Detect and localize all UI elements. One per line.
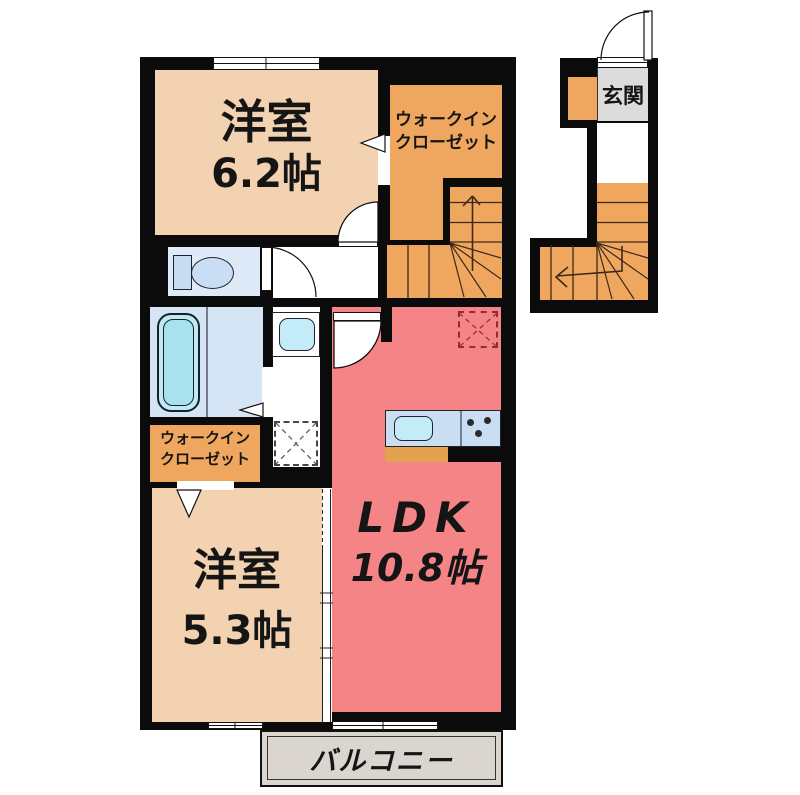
- wic-lower-label-line2: クローゼット: [150, 452, 260, 468]
- door-arc-entrance: [601, 12, 649, 60]
- window-bedroom-lower: [208, 722, 263, 729]
- entrance-bottom-wall: [530, 300, 658, 313]
- bedroom-lower-name: 洋室: [152, 548, 322, 594]
- stove-burner-icon: [475, 430, 482, 437]
- closet-lower-door-opening: [177, 481, 234, 490]
- toilet-icon: [173, 255, 192, 290]
- stove-burner-icon: [467, 419, 474, 426]
- entrance-label: 玄関: [602, 80, 644, 110]
- window-bedroom-upper: [213, 57, 320, 70]
- interior-staircase-lower-run: [387, 245, 502, 298]
- ldk-door-opening: [333, 312, 381, 321]
- entrance-mid-wall: [587, 121, 597, 245]
- entrance-staircase-upper-run: [597, 183, 648, 242]
- kitchen-sink-icon: [394, 416, 433, 441]
- entrance-door-leaf: [644, 11, 652, 60]
- vanity-sink-icon: [279, 318, 315, 351]
- wic-lower-label-line1: ウォークイン: [150, 431, 260, 447]
- entrance-staircase-winder: [597, 242, 648, 300]
- washing-machine-space-icon: [274, 421, 318, 466]
- bathtub-inner: [163, 319, 194, 406]
- bedroom-upper-door-opening: [338, 236, 378, 247]
- ldk-name: LDK: [332, 496, 501, 540]
- entrance-corridor: [597, 123, 648, 183]
- refrigerator-space-icon: [458, 311, 498, 348]
- balcony-area: バルコニー: [260, 730, 503, 787]
- ldk-size: 10.8帖: [332, 549, 501, 589]
- wic-upper-label-line2: クローゼット: [390, 135, 502, 153]
- bedroom-ldk-partition: [322, 488, 332, 722]
- closet-upper-door-opening: [378, 135, 390, 186]
- entrance-staircase-lower-run: [540, 245, 597, 300]
- wic-upper-label-line1: ウォークイン: [390, 112, 502, 130]
- kitchen-base-wall: [448, 447, 501, 462]
- entrance-hall: 玄関: [597, 68, 648, 121]
- entrance-lower-top-wall: [530, 238, 597, 247]
- walk-in-closet-upper-room: [390, 85, 502, 178]
- bedroom-upper-size: 6.2帖: [155, 153, 378, 195]
- bedroom-lower-room: [152, 488, 322, 722]
- floor-plan: バルコニー 玄関: [0, 0, 800, 795]
- window-ldk-balcony: [332, 721, 438, 730]
- walk-in-closet-upper-room-lower-part: [390, 178, 443, 240]
- bedroom-lower-size: 5.3帖: [152, 610, 322, 652]
- stove-burner-icon: [484, 417, 491, 424]
- entrance-door-opening: [597, 57, 648, 68]
- kitchen-base-cabinet: [385, 447, 448, 462]
- toilet-door-leaf: [261, 247, 272, 291]
- entrance-shoe-cabinet: [568, 77, 597, 120]
- balcony-inner-line: [267, 736, 496, 780]
- bathroom-door-opening: [262, 367, 273, 417]
- interior-staircase-upper-run: [450, 187, 502, 245]
- toilet-bowl-icon: [191, 257, 234, 289]
- bedroom-upper-name: 洋室: [155, 98, 378, 146]
- hallway: [273, 247, 378, 298]
- ldk-door-wall-stub: [381, 307, 392, 342]
- entrance-right-wall: [648, 58, 658, 313]
